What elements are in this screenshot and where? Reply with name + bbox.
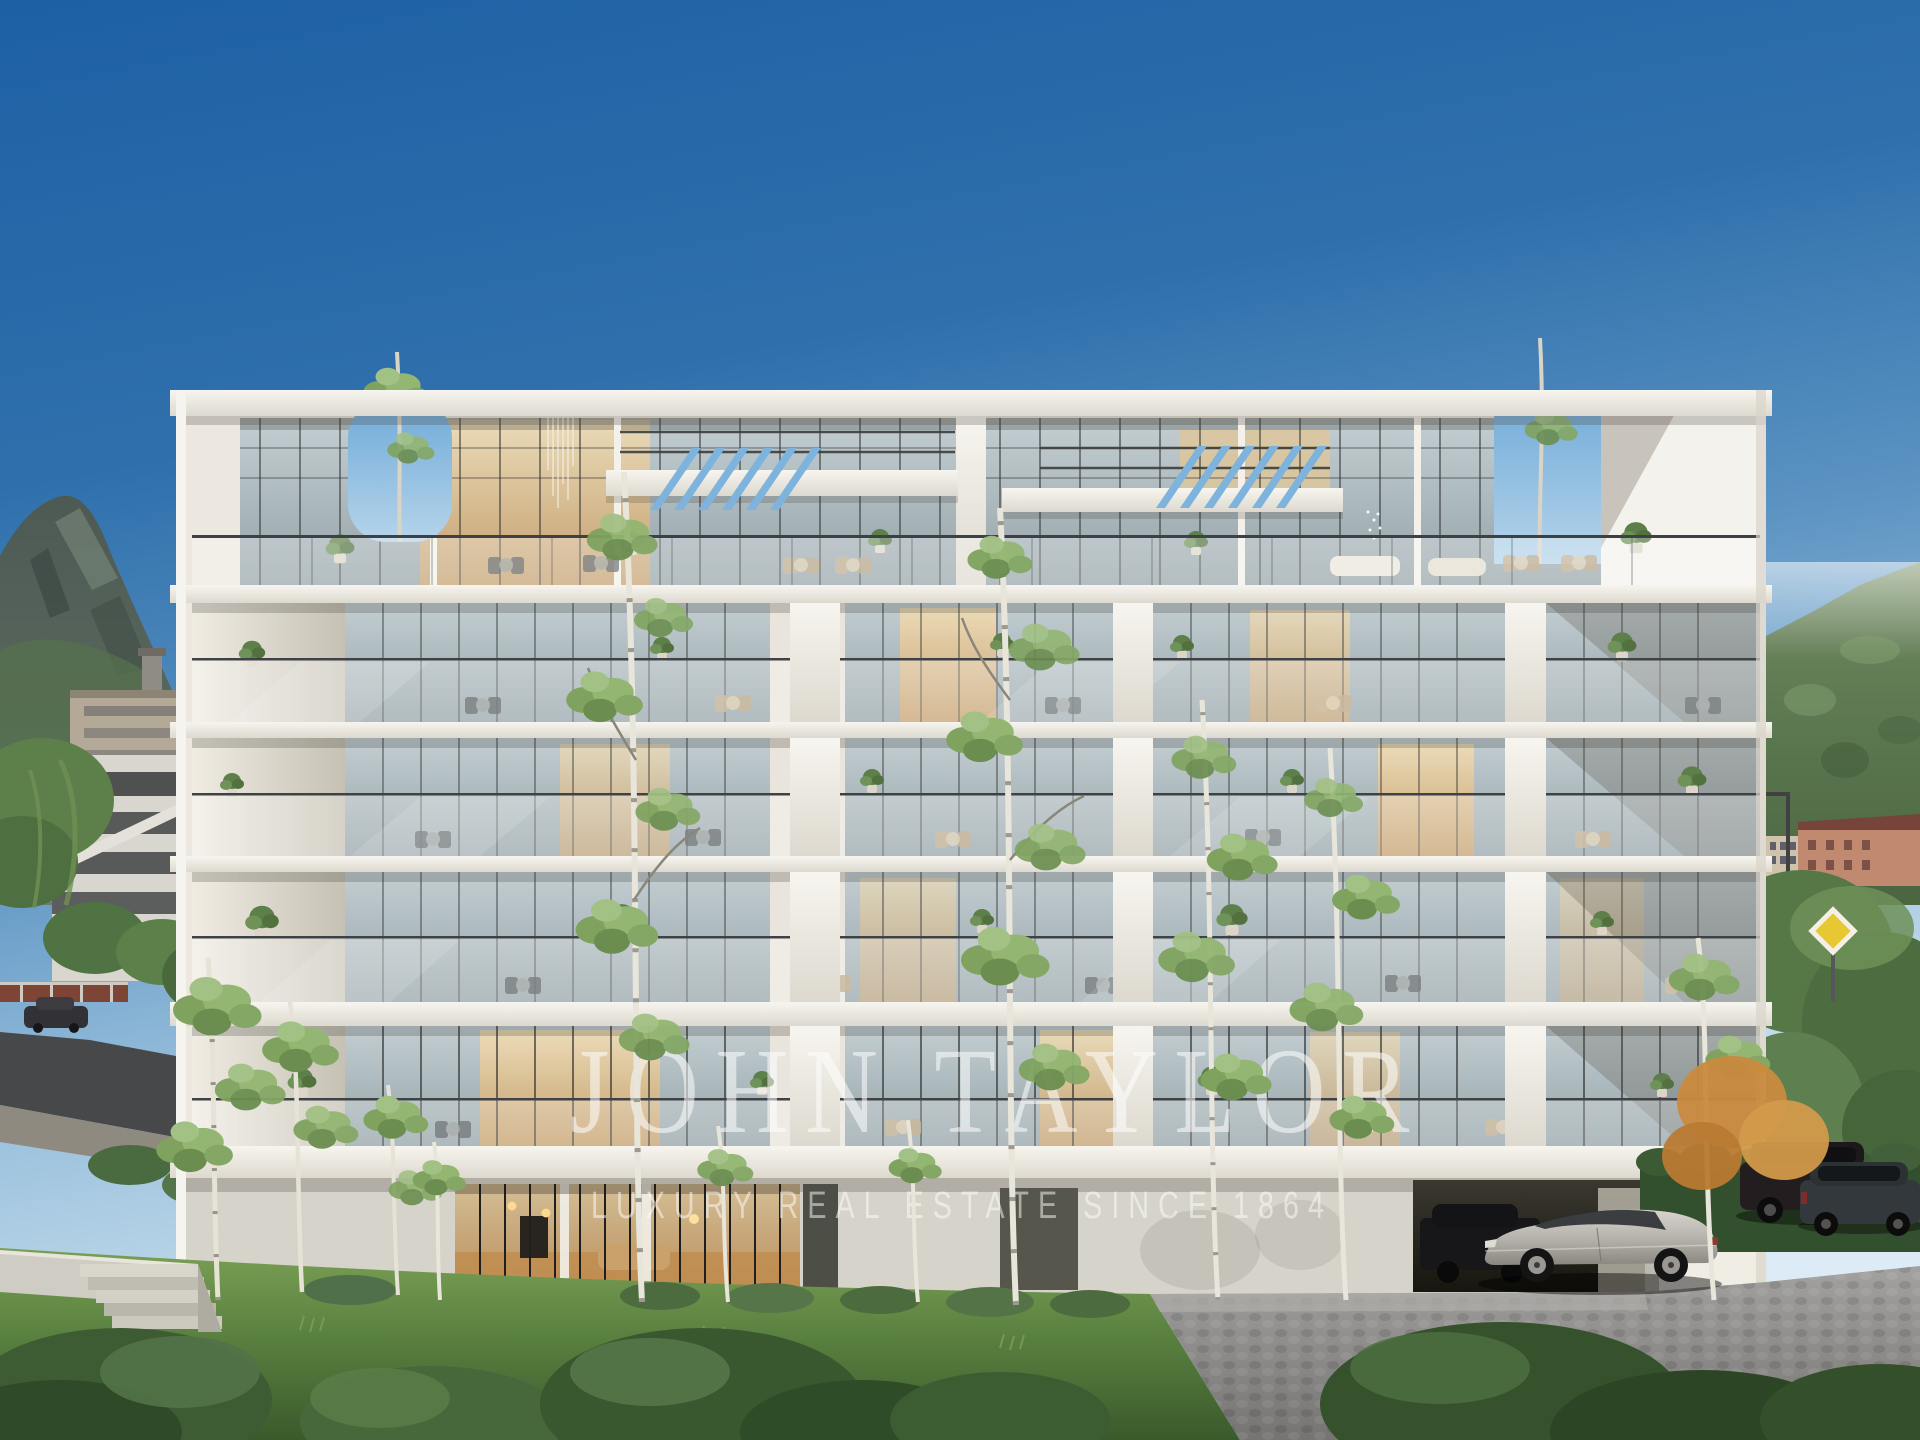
balcony-floor-1 — [192, 603, 1760, 722]
balcony-floor-3 — [192, 872, 1760, 1002]
roof-slab — [170, 390, 1772, 416]
estate-car-grey — [1798, 1162, 1920, 1236]
rendering-canvas: JOHN TAYLOR LUXURY REAL ESTATE SINCE 186… — [0, 0, 1920, 1440]
watermark-brand: JOHN TAYLOR — [570, 1024, 1426, 1159]
watermark-tagline: LUXURY REAL ESTATE SINCE 1864 — [591, 1185, 1333, 1227]
architectural-rendering: JOHN TAYLOR LUXURY REAL ESTATE SINCE 186… — [0, 0, 1920, 1440]
watermark: JOHN TAYLOR LUXURY REAL ESTATE SINCE 186… — [570, 1024, 1426, 1227]
